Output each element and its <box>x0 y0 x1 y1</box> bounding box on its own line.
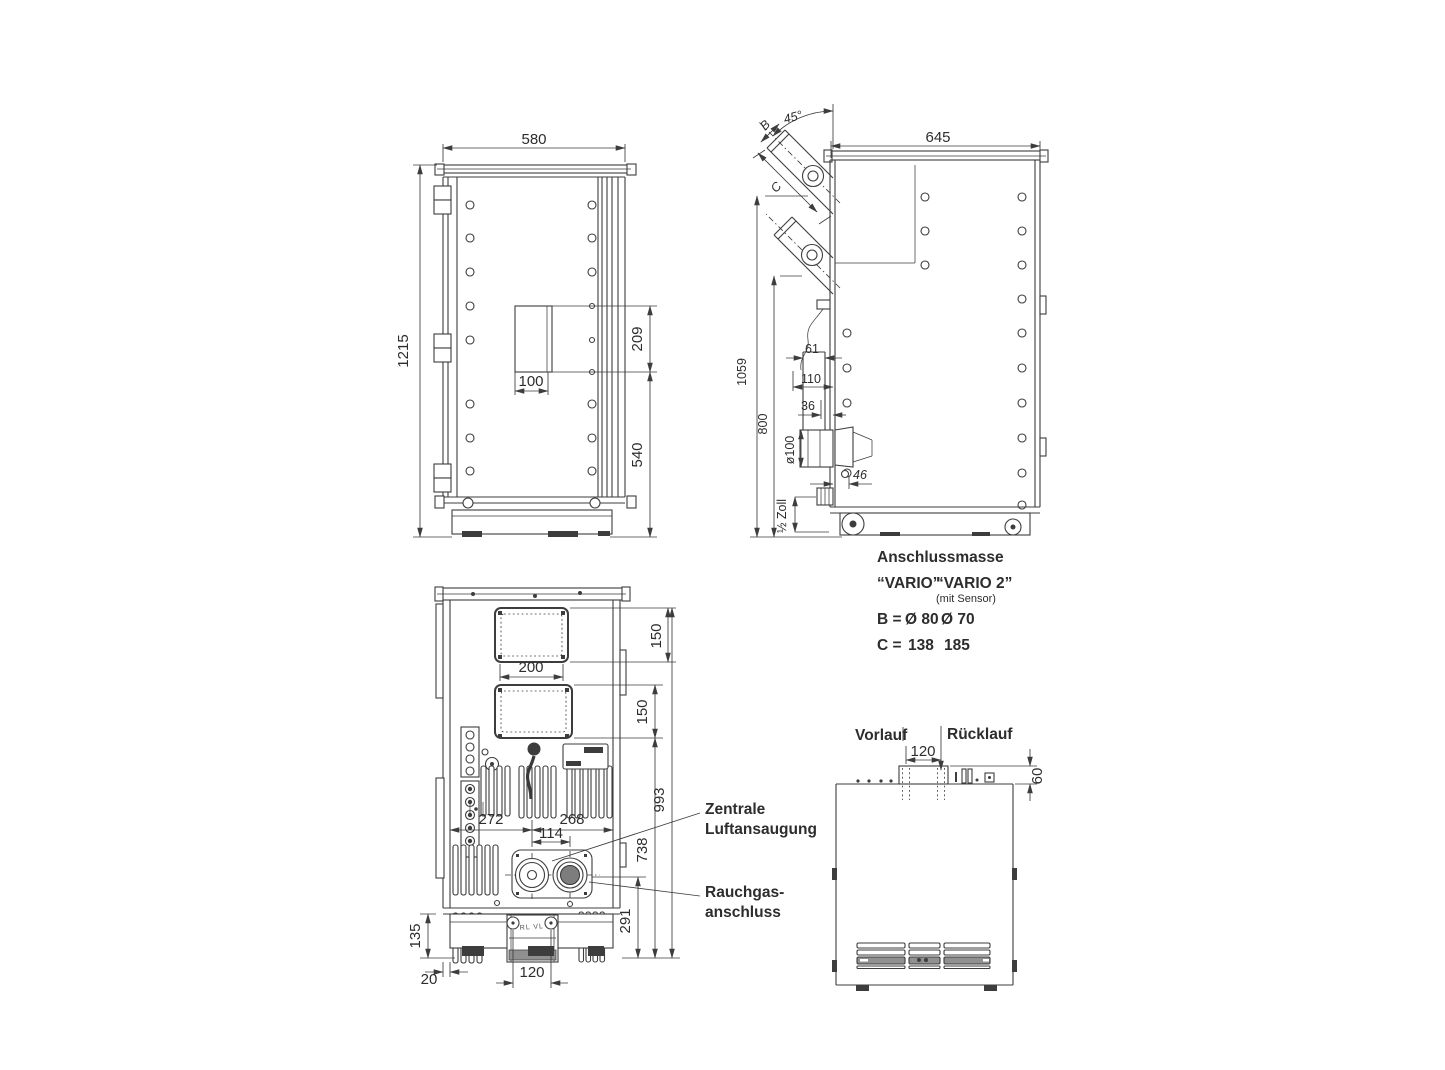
dim-label-front-lower-height: 540 <box>629 442 646 467</box>
side-view-body <box>758 121 1048 536</box>
rear-view-drawing: RL VL 150 200 150 993 738 <box>407 587 817 988</box>
dim-label-61: 61 <box>805 342 819 356</box>
hydraulic-view-dimensions: Vorlauf Rücklauf 120 60 <box>855 726 1046 801</box>
front-hopper-opening <box>515 306 552 372</box>
front-view-drawing: 580 1215 209 100 540 <box>395 131 657 537</box>
dim-label-rear-120: 120 <box>519 964 544 981</box>
side-sensor-cable <box>801 300 830 370</box>
side-view-drawing: 645 45° B C 1059 800 61 110 36 ø100 46 ½… <box>735 104 1048 537</box>
dim-label-rear-150-lower: 150 <box>634 699 651 724</box>
rear-label-plate <box>563 744 608 769</box>
label-air-intake-line1: Zentrale <box>705 801 766 818</box>
connection-table-row-b-value-1: Ø 80 <box>905 611 939 628</box>
dim-label-rear-20: 20 <box>421 971 438 988</box>
connection-table-model-2-note: (mit Sensor) <box>936 593 996 605</box>
dim-label-hydraulic-60: 60 <box>1029 768 1046 785</box>
rear-lower-opening <box>495 685 572 738</box>
label-flue-gas-line1: Rauchgas- <box>705 884 784 901</box>
dim-label-rear-268: 268 <box>559 811 584 828</box>
connection-table-title: Anschlussmasse <box>877 549 1004 566</box>
drawing-canvas: 580 1215 209 100 540 <box>0 0 1445 1070</box>
dim-label-rear-738: 738 <box>634 837 651 862</box>
dim-label-stub-axis-height: 800 <box>756 414 770 435</box>
label-air-intake-line2: Luftansaugung <box>705 821 817 838</box>
dim-label-front-width: 580 <box>521 131 546 148</box>
hydraulic-view-drawing: Vorlauf Rücklauf 120 60 <box>832 726 1046 991</box>
dim-label-rear-993: 993 <box>651 787 668 812</box>
ref-label-pipe-c: C <box>768 178 785 195</box>
front-view-body <box>434 164 636 537</box>
dim-label-hydraulic-120: 120 <box>910 743 935 760</box>
label-flue-gas-line2: anschluss <box>705 904 781 921</box>
dim-label-front-opening-height: 209 <box>629 326 646 351</box>
hydraulic-bottom-grilles <box>857 943 990 969</box>
dim-label-side-depth: 645 <box>925 129 950 146</box>
rear-port-assembly <box>505 850 600 901</box>
dim-label-flue-axis-height: 1059 <box>735 358 749 386</box>
dim-label-46: 46 <box>853 468 867 482</box>
air-intake-port <box>516 859 549 892</box>
rear-upper-opening <box>495 608 568 662</box>
side-small-port <box>842 471 849 478</box>
dim-label-half-zoll: ½ Zoll <box>775 499 789 533</box>
dim-label-rear-150-upper: 150 <box>648 623 665 648</box>
connection-table-row-b-value-2: Ø 70 <box>941 611 975 628</box>
dim-label-flue-angle: 45° <box>782 108 804 126</box>
side-base <box>830 507 1040 536</box>
front-base-plinth <box>452 510 612 537</box>
dim-label-rear-272: 272 <box>478 811 503 828</box>
side-flue-pipe-45 <box>758 121 840 214</box>
dim-label-110: 110 <box>801 372 821 386</box>
dim-label-rear-135: 135 <box>407 923 424 948</box>
connection-table-row-c-value-1: 138 <box>908 637 934 654</box>
hydraulic-top-fittings <box>955 769 994 783</box>
technical-drawing-sheet: 580 1215 209 100 540 <box>0 0 1445 1070</box>
dim-label-front-opening-width: 100 <box>518 373 543 390</box>
connection-table-model-2: “VARIO 2” <box>936 575 1012 592</box>
dim-label-rear-114: 114 <box>539 825 563 842</box>
ref-label-pipe-b: B <box>757 117 773 133</box>
leader-flue-gas <box>589 882 700 896</box>
connection-table-model-1: “VARIO” <box>877 575 940 592</box>
connection-table-row-c-label: C = <box>877 637 902 654</box>
side-view-dimensions: 645 45° B C 1059 800 61 110 36 ø100 46 ½… <box>735 104 1040 537</box>
dim-label-rear-200: 200 <box>518 659 543 676</box>
label-supply: Vorlauf <box>855 727 908 744</box>
hydraulic-view-body <box>832 766 1017 991</box>
connection-table-row-b-label: B = <box>877 611 902 628</box>
rear-view-body: RL VL <box>435 587 630 963</box>
connection-table-row-c-value-2: 185 <box>944 637 970 654</box>
connection-table: Anschlussmasse “VARIO” “VARIO 2” (mit Se… <box>877 549 1012 654</box>
dim-label-rear-291: 291 <box>617 908 634 933</box>
dim-label-intake-dia: ø100 <box>783 436 797 465</box>
dim-label-front-height: 1215 <box>395 334 412 367</box>
label-return: Rücklauf <box>947 726 1013 743</box>
side-flue-stub-lower <box>766 214 840 294</box>
dim-label-36: 36 <box>801 399 815 413</box>
side-half-inch-fitting <box>817 488 833 505</box>
side-screw-holes <box>843 193 1026 509</box>
